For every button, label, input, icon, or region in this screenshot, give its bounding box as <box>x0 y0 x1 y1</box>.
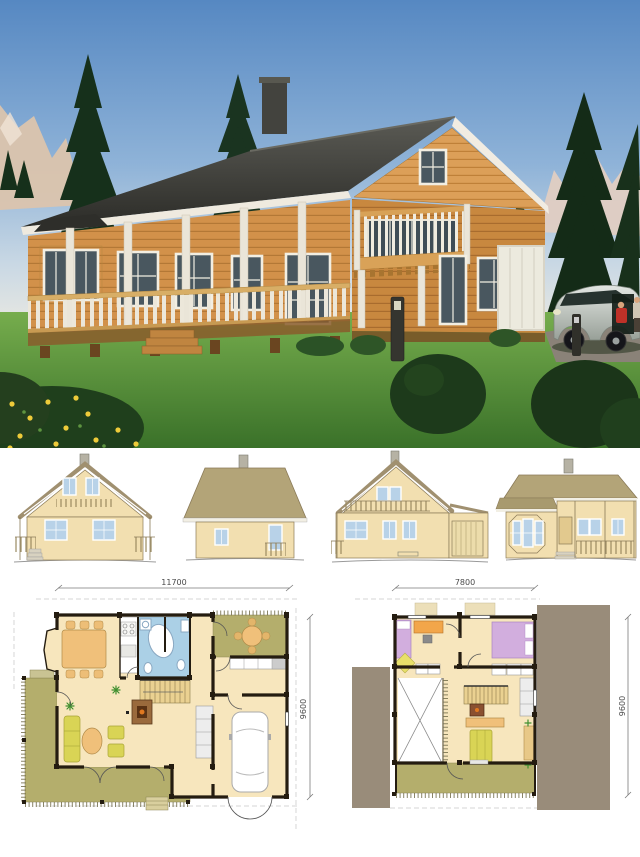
person-body <box>633 303 640 319</box>
toilet <box>144 663 152 674</box>
dim-label-9600-left: 9600 <box>299 699 308 719</box>
person-head <box>634 297 640 303</box>
bollard-light <box>391 297 404 361</box>
window-bedroom2 <box>470 616 490 619</box>
tall-cabinet <box>524 726 534 760</box>
dimension-ground-depth: 9600 <box>299 614 313 800</box>
elevation-drawings <box>0 448 640 570</box>
minivan <box>552 285 640 354</box>
elevation-front-facade <box>331 451 488 562</box>
kitchen-sink <box>121 645 136 657</box>
desk <box>414 621 443 633</box>
upper-fireplace-flue <box>470 704 484 716</box>
dimension-ground-width: 11700 <box>55 578 293 591</box>
dim-label-7800: 7800 <box>455 578 475 587</box>
sink <box>181 620 189 632</box>
washer <box>140 619 151 630</box>
roof-slope-left <box>352 667 390 808</box>
balcony-upper <box>396 763 535 793</box>
porch-steps <box>142 330 202 354</box>
person-legs <box>634 318 640 332</box>
window-bedroom1 <box>408 616 426 619</box>
upper-staircase <box>464 686 508 704</box>
elevation-rear-side <box>183 455 307 560</box>
window-landing <box>534 690 537 706</box>
balcony-threshold <box>470 760 488 764</box>
elevation-entry-side <box>496 459 637 560</box>
daybed <box>470 730 492 762</box>
deck-steps <box>30 670 54 678</box>
side-steps <box>27 549 43 560</box>
bidet <box>177 660 185 671</box>
sideboard <box>466 718 504 727</box>
balcony-rail-band <box>344 501 430 511</box>
page: 11700 7800 <box>0 0 640 857</box>
stove <box>121 622 136 636</box>
roof-slope-right <box>537 605 610 810</box>
ground-floor-plan: 9600 <box>14 599 313 830</box>
bollard-light-small <box>572 314 581 356</box>
passenger-body <box>616 308 627 323</box>
upper-floor-plan: 9600 <box>352 599 631 810</box>
garage-door <box>498 246 544 330</box>
utility-counter <box>230 658 286 669</box>
floor-plans: 11700 7800 <box>0 570 640 857</box>
chimney <box>259 77 290 134</box>
coffee-table <box>82 728 102 754</box>
elevation-gable-end <box>14 454 156 562</box>
upper-gable-window <box>420 150 446 184</box>
terrace-table <box>242 626 262 646</box>
garage-car <box>229 712 271 792</box>
dimension-upper-depth: 9600 <box>618 614 631 798</box>
gable-slat-band <box>56 499 114 507</box>
dim-label-11700: 11700 <box>161 578 186 587</box>
dim-label-9600-right: 9600 <box>618 696 627 716</box>
dimension-upper-width: 7800 <box>392 578 538 591</box>
exterior-photo <box>0 0 640 448</box>
entry-door <box>559 517 572 544</box>
garage-door-elevation <box>452 521 483 556</box>
staircase <box>140 680 190 703</box>
entry-steps <box>146 797 168 810</box>
upper-closet <box>520 678 535 716</box>
kitchen <box>120 617 138 673</box>
passenger-head <box>618 302 624 308</box>
desk-chair <box>423 635 432 643</box>
garage-window <box>286 712 289 726</box>
pillow <box>397 621 410 629</box>
hall-closet <box>196 706 213 758</box>
